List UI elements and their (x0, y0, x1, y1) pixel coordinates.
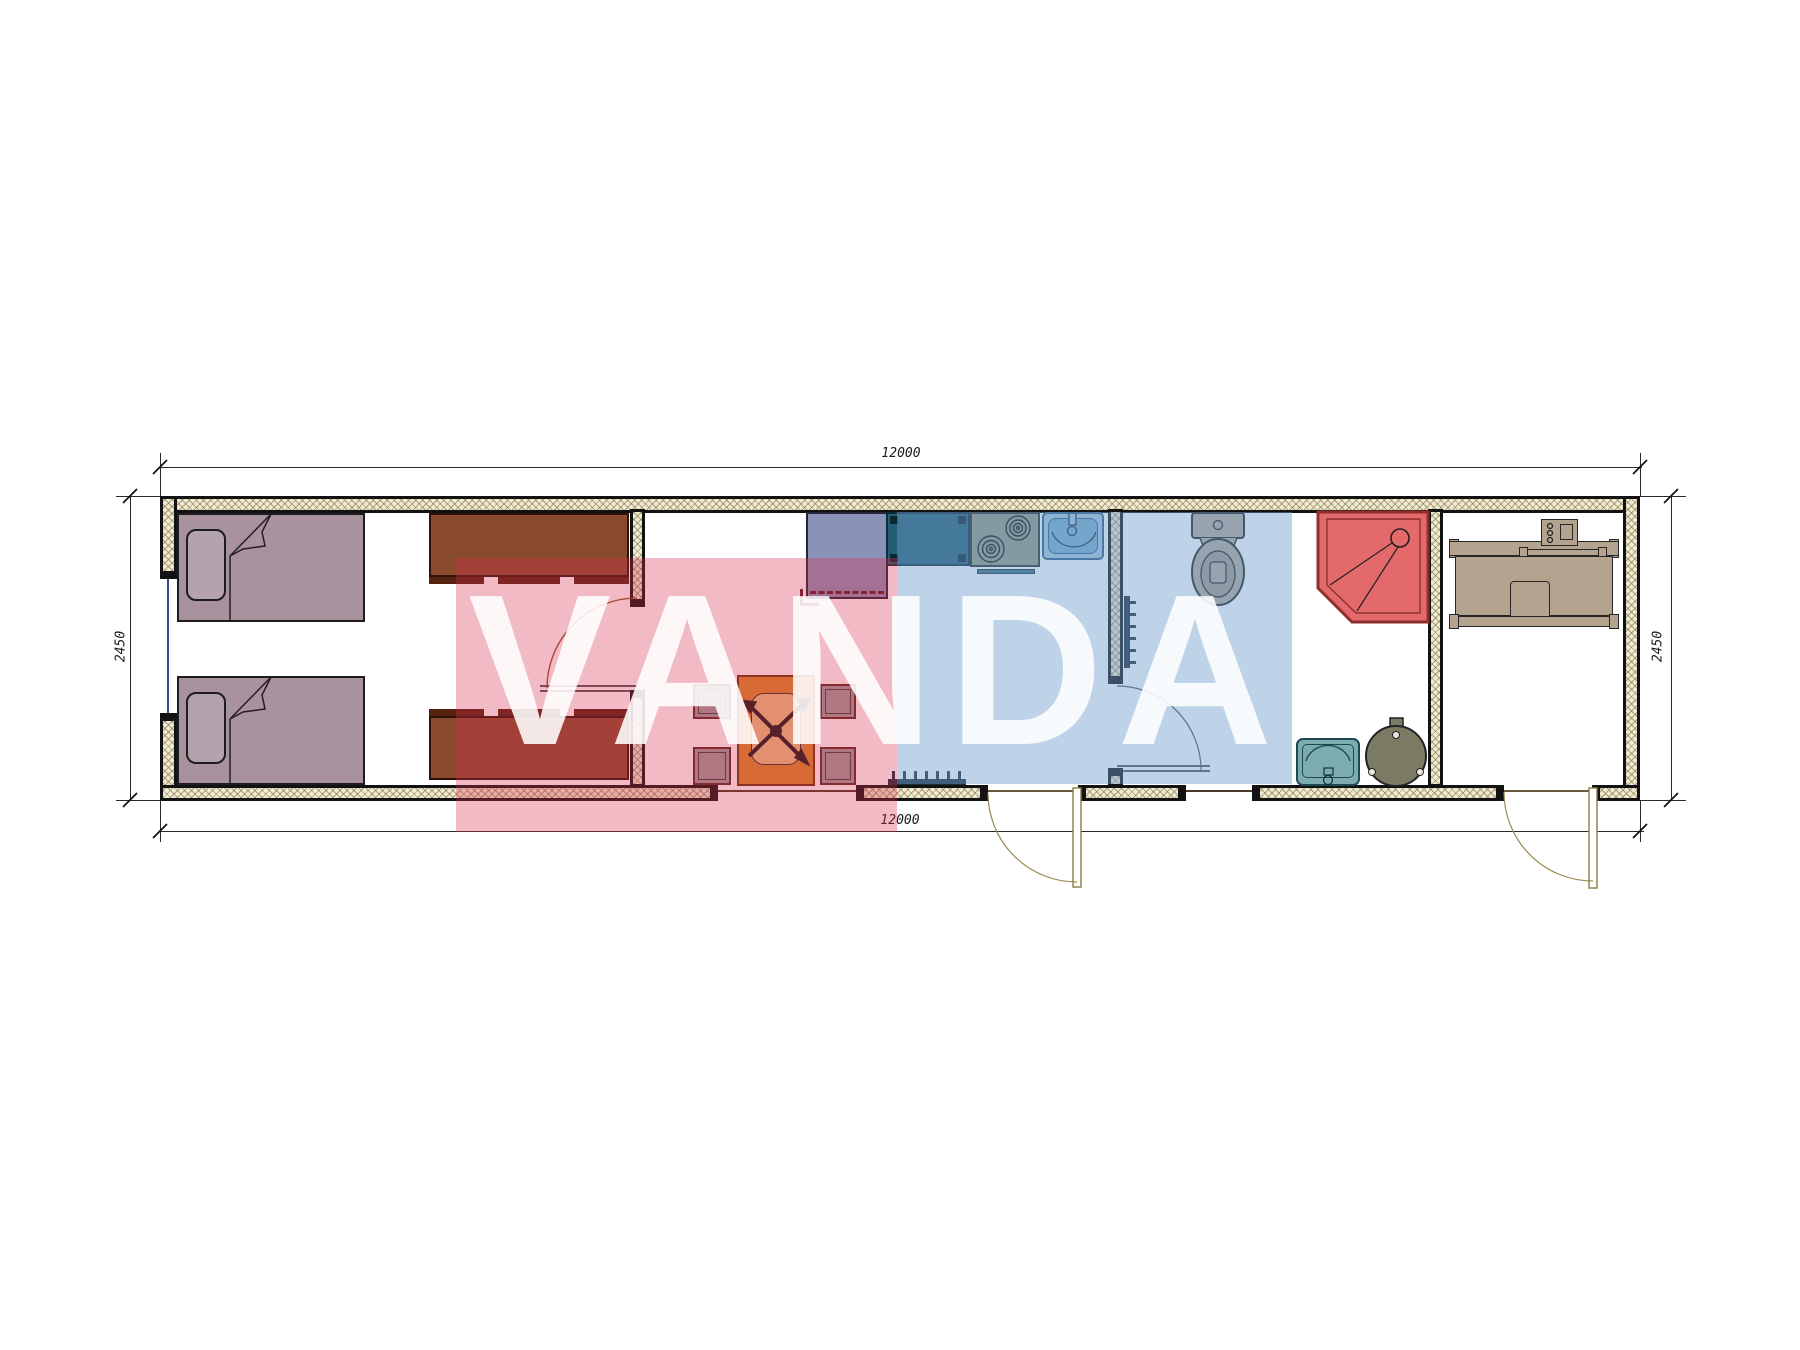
water-heater (1366, 718, 1426, 786)
floor-plan-canvas: 12000 12000 2450 2450 (0, 0, 1800, 1350)
watermark-text: VANDA (468, 562, 1287, 777)
entrance-door-office (1504, 788, 1597, 888)
shower (1318, 512, 1428, 622)
entrance-door-main (988, 788, 1081, 887)
office-printer-knobs (1548, 524, 1553, 543)
washbasin-tap (1306, 745, 1350, 784)
bed-fold-lines (230, 514, 271, 783)
